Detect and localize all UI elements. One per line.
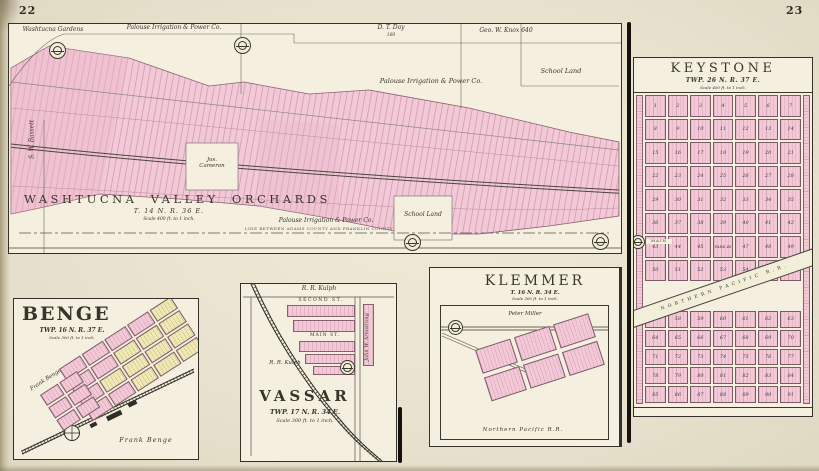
keystone-block: 31	[690, 189, 711, 211]
keystone-block: 75	[735, 349, 756, 366]
keystone-block: 71	[645, 349, 666, 366]
keystone-block: 87	[690, 386, 711, 403]
benge-depot-building	[106, 410, 123, 422]
keystone-block: 26	[735, 166, 756, 188]
keystone-block: 80	[690, 367, 711, 384]
keystone-township: TWP. 26 N. R. 37 E.	[634, 78, 812, 85]
keystone-block: 67	[713, 330, 734, 347]
vassar-scale: Scale 300 ft. to 1 inch.	[251, 419, 359, 425]
keystone-block: 89	[735, 386, 756, 403]
keystone-block: 20	[758, 142, 779, 164]
keystone-block: 19	[735, 142, 756, 164]
keystone-block-row: 36373839404142	[645, 213, 801, 235]
keystone-block: 13	[758, 119, 779, 141]
keystone-blocks-upper: 1234567891011121314151617181920212223242…	[645, 95, 801, 281]
keystone-block: 2	[668, 95, 689, 117]
geo-knox-label: Geo. W. Knox 640	[446, 28, 566, 35]
keystone-blocks-lower: 5758596061626364656667686970717273747576…	[645, 311, 801, 403]
klemmer-owner-label: Peter Miller	[475, 311, 575, 317]
keystone-block: 32	[713, 189, 734, 211]
keystone-block: 9	[668, 119, 689, 141]
keystone-block: 15	[645, 142, 666, 164]
keystone-block-row: 15161718192021	[645, 142, 801, 164]
keystone-block: 82	[735, 367, 756, 384]
survey-stamp-icon	[340, 360, 355, 375]
keystone-block: 22	[645, 166, 666, 188]
keystone-block: 30	[668, 189, 689, 211]
survey-stamp-icon	[633, 235, 645, 249]
keystone-block: 7	[780, 95, 801, 117]
keystone-block-row: 78798081828384	[645, 367, 801, 384]
keystone-block: 66	[690, 330, 711, 347]
keystone-block: 69	[758, 330, 779, 347]
keystone-block: 11	[713, 119, 734, 141]
keystone-block: 50	[645, 260, 666, 282]
keystone-block: 90	[758, 386, 779, 403]
keystone-block: 42	[780, 213, 801, 235]
keystone-block-row: 1234567	[645, 95, 801, 117]
benge-owner-bottom-label: Frank Benge	[106, 437, 186, 444]
washtucna-gardens-label: Washtucna Gardens	[13, 27, 93, 34]
keystone-block: 51	[668, 260, 689, 282]
keystone-bottom-divider	[634, 407, 812, 408]
keystone-block: 34	[758, 189, 779, 211]
vassar-main-street-label: MAIN ST.	[295, 333, 355, 338]
page-fold-line	[627, 22, 631, 443]
keystone-block: 73	[690, 349, 711, 366]
keystone-block: 59	[690, 311, 711, 328]
keystone-block-row: 64656667686970	[645, 330, 801, 347]
benge-scale: Scale 300 ft. to 1 inch.	[32, 336, 112, 341]
keystone-scale: Scale 400 ft. to 1 inch.	[634, 86, 812, 91]
palouse-bottom-label: Palouse Irrigation & Power Co.	[241, 218, 411, 225]
survey-stamp-icon	[49, 42, 66, 59]
atlas-page: 22 23	[0, 0, 819, 471]
keystone-block: 84	[780, 367, 801, 384]
benge-panel: BENGE TWP. 16 N. R. 37 E. Scale 300 ft. …	[13, 298, 199, 460]
keystone-block: 45	[690, 236, 711, 258]
keystone-block-row: 29303132333435	[645, 189, 801, 211]
keystone-block: 65	[668, 330, 689, 347]
survey-stamp-icon	[592, 233, 609, 250]
survey-stamp-icon	[234, 37, 251, 54]
benge-depot-building	[89, 421, 97, 428]
keystone-main-street-label: MAIN	[646, 239, 672, 244]
keystone-block: 38	[690, 213, 711, 235]
keystone-block: 77	[780, 349, 801, 366]
keystone-block: 47	[735, 236, 756, 258]
keystone-block: 5	[735, 95, 756, 117]
keystone-block: 61	[735, 311, 756, 328]
dt-day-label: D. T. Day 160	[361, 25, 421, 39]
school-land-right-label: School Land	[521, 68, 601, 75]
keystone-block: 70	[780, 330, 801, 347]
keystone-block: 83	[758, 367, 779, 384]
keystone-block: 10	[690, 119, 711, 141]
vassar-second-street-label: SECOND ST.	[281, 298, 361, 303]
keystone-block: 12	[735, 119, 756, 141]
keystone-block: 86	[668, 386, 689, 403]
keystone-block: 64	[645, 330, 666, 347]
keystone-block: 35	[780, 189, 801, 211]
jos-cameron-line1: Jos.	[207, 157, 217, 163]
jos-cameron-line2: Cameron	[199, 163, 224, 169]
washtucna-scale: Scale 400 ft. to 1 inch.	[89, 217, 249, 222]
keystone-block: 63	[780, 311, 801, 328]
vassar-panel: R. R. Kulph SECOND ST. MAIN ST. R. R. Ku…	[240, 283, 397, 462]
keystone-block: 91	[780, 386, 801, 403]
keystone-block: 88	[713, 386, 734, 403]
keystone-block: 8	[645, 119, 666, 141]
palouse-top-label: Palouse Irrigation & Power Co.	[94, 25, 254, 32]
keystone-block: 21	[780, 142, 801, 164]
vassar-lot-strip	[299, 341, 355, 352]
keystone-panel: KEYSTONE TWP. 26 N. R. 37 E. Scale 400 f…	[633, 57, 813, 417]
washtucna-title: WASHTUCNA VALLEY ORCHARDS	[24, 193, 314, 206]
dt-day-name: D. T. Day	[377, 24, 404, 31]
keystone-block: 62	[758, 311, 779, 328]
keystone-block: PARK 46	[713, 236, 734, 258]
keystone-block: 37	[668, 213, 689, 235]
sw-bassett-label: S. W. Bassett	[30, 108, 37, 170]
keystone-block-row: 891011121314	[645, 119, 801, 141]
survey-stamp-icon	[448, 320, 463, 335]
keystone-title: KEYSTONE	[634, 62, 812, 77]
keystone-block: 17	[690, 142, 711, 164]
keystone-block: 39	[713, 213, 734, 235]
vassar-owner-right-label: John W. Armstrong	[365, 302, 371, 372]
keystone-block: 33	[735, 189, 756, 211]
keystone-block: 79	[668, 367, 689, 384]
keystone-block: 18	[713, 142, 734, 164]
keystone-block: 60	[713, 311, 734, 328]
keystone-block: 72	[668, 349, 689, 366]
survey-stamp-icon	[404, 234, 421, 251]
keystone-block: 1	[645, 95, 666, 117]
keystone-block: 81	[713, 367, 734, 384]
keystone-block: 29	[645, 189, 666, 211]
keystone-block: 14	[780, 119, 801, 141]
klemmer-railroad-label: Northern Pacific R.R.	[458, 427, 588, 433]
vassar-township: TWP. 17 N. R. 34 E.	[245, 409, 365, 416]
keystone-block-row: 22232425262728	[645, 166, 801, 188]
keystone-block-row: 85868788899091	[645, 386, 801, 403]
keystone-block: 36	[645, 213, 666, 235]
vassar-lot-strip	[293, 320, 355, 332]
keystone-block: 23	[668, 166, 689, 188]
keystone-block: 28	[780, 166, 801, 188]
keystone-block: 48	[758, 236, 779, 258]
keystone-title-divider	[634, 92, 812, 93]
keystone-block: 6	[758, 95, 779, 117]
dt-day-acres: 160	[387, 33, 396, 38]
keystone-outlot-strip-left	[636, 95, 643, 404]
keystone-block: 27	[758, 166, 779, 188]
keystone-block: 25	[713, 166, 734, 188]
keystone-block: 52	[690, 260, 711, 282]
benge-title: BENGE	[22, 304, 122, 326]
vassar-title: VASSAR	[249, 388, 361, 405]
washtucna-map-panel: Washtucna Gardens Palouse Irrigation & P…	[8, 23, 622, 254]
klemmer-panel: KLEMMER T. 16 N. R. 34 E. Scale 300 ft. …	[429, 267, 622, 447]
benge-township: TWP. 16 N. R. 37 E.	[26, 328, 118, 335]
county-line-label: LINE BETWEEN ADAMS COUNTY AND FRANKLIN C…	[159, 227, 479, 232]
vassar-owner-mid-label: R. R. Kulph	[255, 360, 315, 366]
keystone-block: 3	[690, 95, 711, 117]
keystone-block: 16	[668, 142, 689, 164]
keystone-block-row: 71727374757677	[645, 349, 801, 366]
keystone-block: 4	[713, 95, 734, 117]
vassar-owner-top-label: R. R. Kulph	[269, 286, 369, 293]
keystone-block: 85	[645, 386, 666, 403]
page-number-left: 22	[19, 4, 36, 17]
keystone-block: 68	[735, 330, 756, 347]
page-fold-mark	[398, 407, 402, 463]
keystone-block: 74	[713, 349, 734, 366]
keystone-block: 76	[758, 349, 779, 366]
palouse-mid-label: Palouse Irrigation & Power Co.	[351, 78, 511, 85]
keystone-block: 40	[735, 213, 756, 235]
keystone-block: 41	[758, 213, 779, 235]
keystone-block: 78	[645, 367, 666, 384]
keystone-block: 24	[690, 166, 711, 188]
washtucna-township: T. 14 N. R. 36 E.	[69, 208, 269, 215]
vassar-lot-strip	[287, 305, 355, 317]
paper-bottom-shade	[0, 465, 819, 471]
page-number-right: 23	[786, 4, 803, 17]
jos-cameron-label: Jos. Cameron	[186, 157, 238, 170]
